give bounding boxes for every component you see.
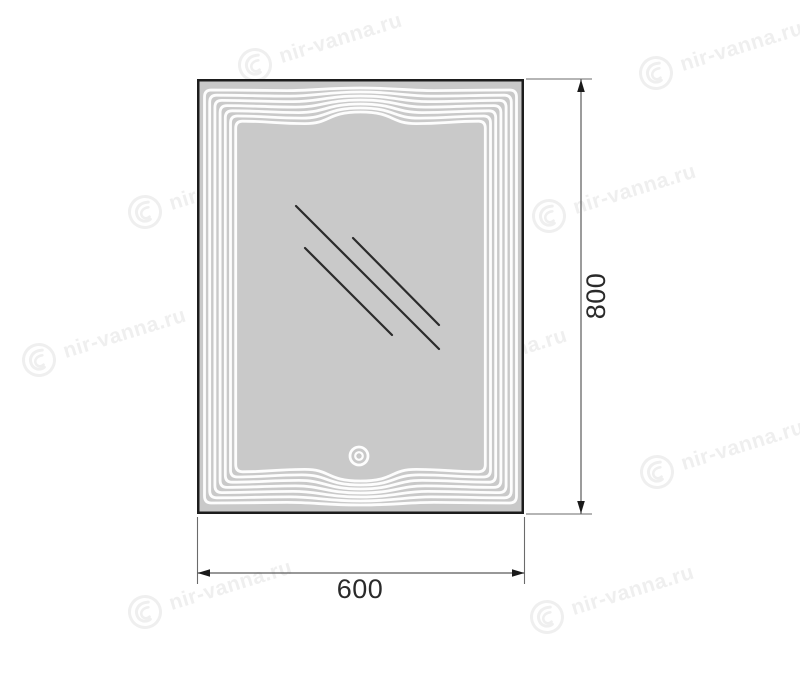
width-dimension-label: 600 <box>310 574 410 605</box>
arrow-right-icon <box>512 569 525 577</box>
drawing-page: { "drawing": { "width_label": "600", "he… <box>0 0 800 676</box>
arrow-down-icon <box>577 501 585 514</box>
height-dimension-label: 800 <box>566 266 626 326</box>
arrow-left-icon <box>198 569 211 577</box>
mirror-drawing <box>197 79 524 514</box>
arrow-up-icon <box>577 80 585 93</box>
